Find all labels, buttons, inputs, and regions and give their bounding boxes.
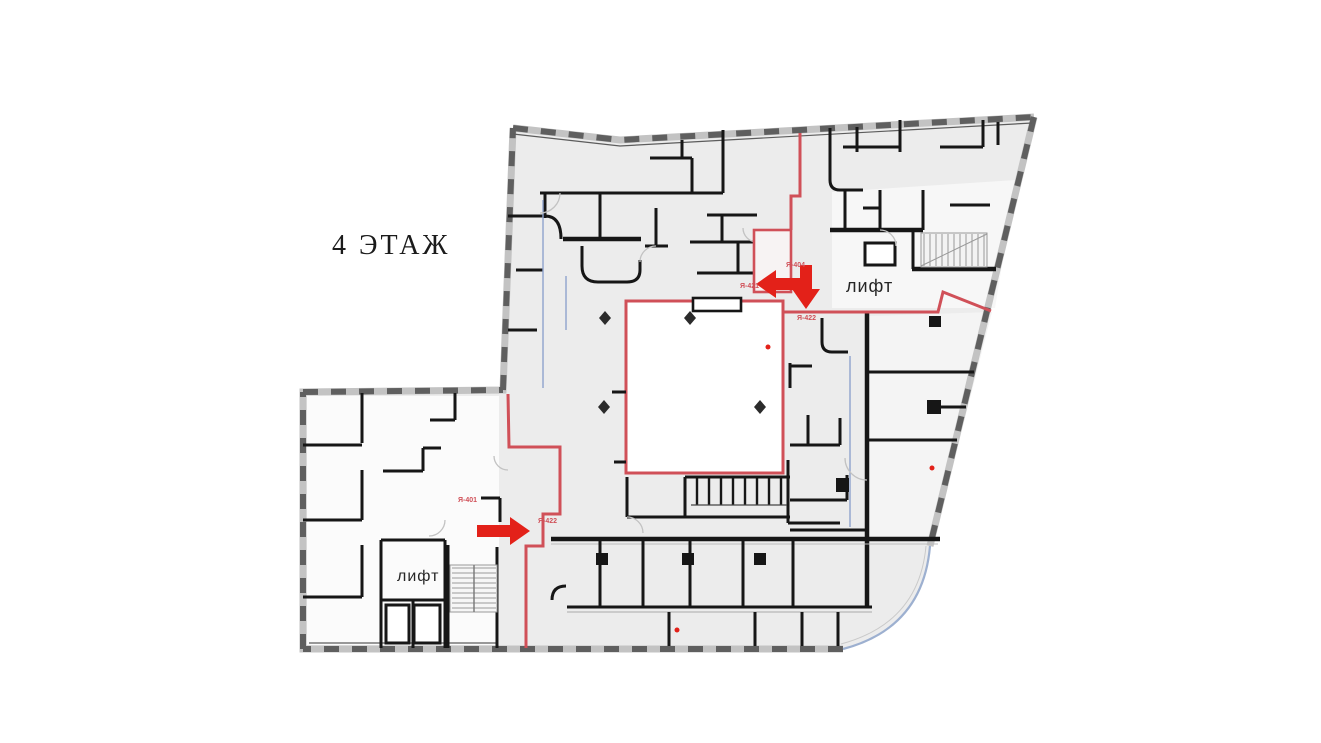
staircase-upper-right [921,233,987,267]
room-tag: Я-421 [740,283,759,290]
courtyard [612,298,783,473]
courtyard-top-structure [693,298,741,311]
red-dot [766,345,771,350]
wall-fixture [836,478,849,492]
elevator-shaft-1 [386,605,409,643]
room-tag: Я-422 [538,518,557,525]
staircase-lower-left [450,565,497,612]
room-tag: Я-401 [458,497,477,504]
floor-plan-drawing [0,0,1321,743]
elevator-label-upper: лифт [846,276,893,297]
wall-fixture [927,400,941,414]
wall-fixture [929,316,941,327]
red-dot [675,628,680,633]
room-tag: Я-404 [786,262,805,269]
upper-elevator-shaft [865,243,895,265]
elevator-label-lower: лифт [397,568,439,586]
courtyard-shaft [626,301,783,473]
right-rooms [869,312,992,540]
elevator-shaft-2 [414,605,440,643]
red-dot [930,466,935,471]
floor-title: 4 ЭТАЖ [332,230,451,262]
room-tag: Я-422 [797,315,816,322]
floor-plan-page: 4 ЭТАЖ лифт лифт Я-404 Я-421 Я-422 Я-401… [0,0,1321,743]
